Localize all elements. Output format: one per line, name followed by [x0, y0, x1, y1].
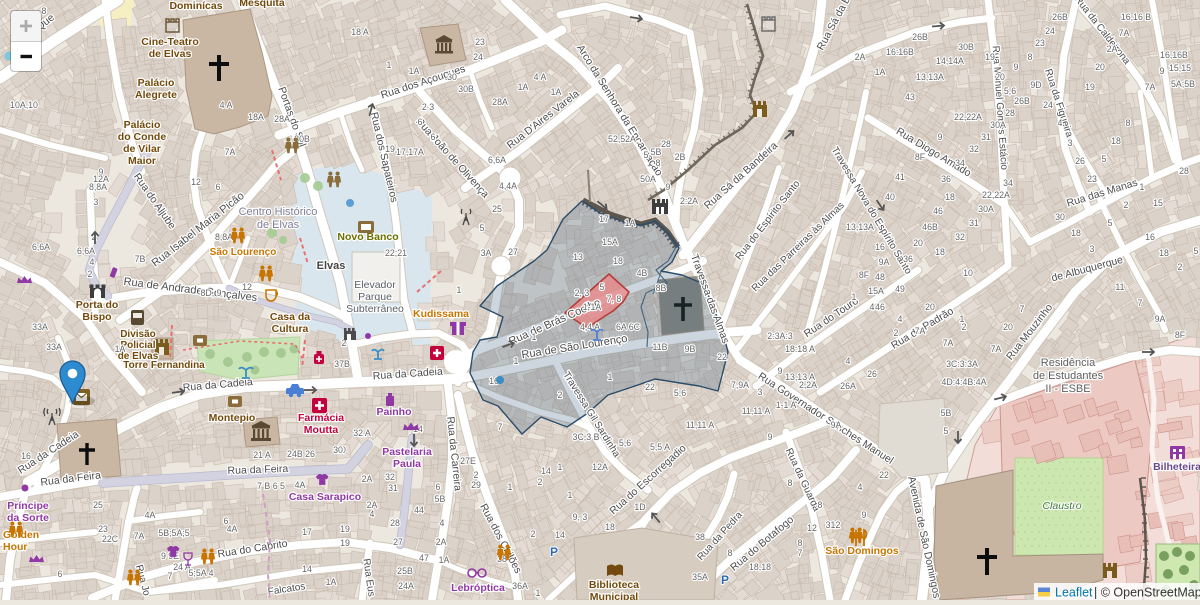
svg-text:46: 46 [875, 302, 885, 312]
svg-text:6: 6 [58, 569, 63, 579]
svg-text:1A: 1A [875, 67, 886, 77]
svg-text:47: 47 [419, 553, 429, 563]
svg-text:Rua da Feira: Rua da Feira [227, 463, 288, 477]
svg-text:9D: 9D [1030, 80, 1041, 90]
svg-text:Municipal: Municipal [590, 591, 639, 600]
svg-text:de Estudantes: de Estudantes [1033, 370, 1104, 382]
svg-text:Casa da: Casa da [270, 311, 310, 323]
svg-text:9: 9 [666, 182, 671, 192]
svg-text:7B: 7B [135, 254, 146, 264]
svg-text:33A: 33A [32, 322, 48, 332]
svg-text:4A: 4A [145, 510, 156, 520]
svg-text:18: 18 [605, 522, 615, 532]
svg-text:16:16B: 16:16B [886, 47, 914, 57]
svg-text:1A: 1A [439, 555, 450, 565]
svg-text:Residência: Residência [1041, 357, 1096, 369]
svg-text:3A: 3A [481, 248, 492, 258]
svg-text:de Vilar: de Vilar [123, 143, 161, 155]
svg-text:32 A: 32 A [353, 428, 371, 438]
svg-text:5: 5 [944, 426, 949, 436]
svg-text:8: 8 [798, 538, 803, 548]
svg-text:21 A: 21 A [253, 450, 271, 460]
svg-text:7A: 7A [225, 147, 236, 157]
svg-text:Painho: Painho [376, 406, 411, 418]
svg-text:Montepio: Montepio [209, 412, 256, 424]
svg-text:2: 2 [894, 328, 899, 338]
svg-text:24: 24 [1045, 26, 1055, 36]
svg-text:9: 9 [1160, 66, 1165, 76]
svg-text:40: 40 [885, 192, 895, 202]
svg-text:8: 8 [1126, 118, 1131, 128]
svg-text:36A: 36A [512, 581, 528, 591]
svg-text:13,13A: 13,13A [846, 222, 874, 232]
svg-text:18,18: 18,18 [749, 562, 771, 572]
svg-text:Palácio: Palácio [138, 77, 175, 89]
svg-text:15A: 15A [602, 237, 618, 247]
svg-text:5: 5 [600, 282, 605, 292]
svg-text:5: 5 [480, 223, 485, 233]
svg-text:17: 17 [302, 527, 312, 537]
svg-text:1: 1 [532, 332, 537, 342]
svg-text:30B: 30B [458, 84, 474, 94]
svg-text:17: 17 [599, 214, 609, 224]
svg-text:Maior: Maior [128, 155, 156, 167]
svg-text:25: 25 [492, 204, 502, 214]
svg-text:20: 20 [1095, 62, 1105, 72]
svg-text:2: 2 [88, 269, 93, 279]
svg-text:3: 3 [1068, 138, 1073, 148]
svg-text:18: 18 [935, 247, 945, 257]
svg-text:São Domingos: São Domingos [825, 545, 899, 557]
svg-text:5B: 5B [651, 147, 662, 157]
svg-text:Príncipe: Príncipe [7, 500, 49, 512]
svg-text:16: 16 [875, 242, 885, 252]
svg-text:38: 38 [695, 532, 705, 542]
svg-text:6: 6 [436, 482, 441, 492]
svg-text:30: 30 [333, 445, 343, 455]
svg-text:5B: 5B [435, 494, 446, 504]
svg-text:3: 3 [1090, 244, 1095, 254]
svg-text:9: 9 [1014, 62, 1019, 72]
svg-text:1A: 1A [551, 87, 562, 97]
svg-text:1A: 1A [326, 577, 337, 587]
svg-text:Dominícas: Dominícas [169, 0, 222, 12]
svg-text:16,16 B: 16,16 B [1121, 12, 1151, 22]
svg-text:7A: 7A [991, 344, 1002, 354]
svg-text:34: 34 [1003, 178, 1013, 188]
svg-text:de Elvas: de Elvas [257, 219, 300, 231]
svg-text:do Conde: do Conde [118, 131, 167, 143]
svg-text:Palácio: Palácio [124, 119, 161, 131]
svg-text:São Lourenço: São Lourenço [210, 247, 277, 258]
svg-text:Kudissama: Kudissama [413, 308, 469, 320]
svg-text:8: 8 [728, 548, 733, 558]
svg-text:2A: 2A [855, 52, 866, 62]
svg-text:1: 1 [558, 462, 563, 472]
svg-text:26B: 26B [1014, 96, 1030, 106]
svg-text:1: 1 [608, 372, 613, 382]
svg-text:7,9A: 7,9A [731, 380, 749, 390]
svg-text:11B: 11B [653, 342, 668, 352]
svg-text:3: 3 [758, 387, 763, 397]
svg-text:6A 6C: 6A 6C [616, 322, 641, 332]
svg-text:Moutta: Moutta [304, 424, 339, 436]
svg-text:P: P [721, 573, 729, 587]
svg-text:4,4A: 4,4A [499, 181, 517, 191]
svg-text:22: 22 [879, 470, 889, 480]
svg-text:9 9E: 9 9E [161, 551, 179, 561]
svg-text:22: 22 [717, 352, 727, 362]
svg-text:9A: 9A [831, 420, 842, 430]
svg-text:9, 3: 9, 3 [573, 512, 588, 522]
svg-text:14,14A: 14,14A [936, 56, 964, 66]
svg-text:1: 1 [960, 314, 965, 324]
svg-text:14: 14 [302, 564, 312, 574]
svg-text:50A: 50A [640, 174, 656, 184]
svg-text:26A: 26A [840, 381, 856, 391]
svg-text:6: 6 [224, 516, 229, 526]
svg-text:12: 12 [242, 282, 252, 292]
svg-text:12A: 12A [93, 174, 109, 184]
svg-text:48: 48 [875, 272, 885, 282]
svg-text:49: 49 [895, 284, 905, 294]
svg-text:1: 1 [387, 60, 392, 70]
svg-text:10: 10 [963, 268, 973, 278]
svg-text:8D, 9: 8D, 9 [200, 288, 221, 298]
svg-text:46B: 46B [922, 222, 938, 232]
svg-text:9: 9 [768, 432, 773, 442]
svg-text:1: 1 [457, 285, 462, 295]
svg-text:31: 31 [981, 132, 991, 142]
svg-text:8: 8 [1028, 52, 1033, 62]
svg-text:Centro Histórico: Centro Histórico [239, 206, 318, 218]
svg-text:Elevador: Elevador [354, 279, 396, 291]
svg-text:30A: 30A [990, 120, 1006, 130]
svg-text:23: 23 [1035, 38, 1045, 48]
svg-text:1A: 1A [625, 218, 636, 228]
svg-text:1: 1 [852, 292, 857, 302]
svg-text:Casa Sarapico: Casa Sarapico [289, 491, 361, 503]
svg-text:5,6: 5,6 [1004, 86, 1016, 96]
svg-text:9: 9 [778, 366, 783, 376]
svg-text:24: 24 [473, 52, 483, 62]
svg-text:28: 28 [1005, 108, 1015, 118]
svg-text:Cultura: Cultura [272, 323, 309, 335]
svg-text:13: 13 [573, 252, 583, 262]
svg-text:6: 6 [216, 182, 221, 192]
svg-text:2 3: 2 3 [422, 102, 434, 112]
svg-text:36: 36 [941, 174, 951, 184]
svg-text:2: 2 [531, 529, 536, 539]
svg-text:4: 4 [370, 509, 375, 519]
svg-text:5A;5B: 5A;5B [1171, 79, 1195, 89]
svg-text:312: 312 [826, 520, 841, 530]
svg-text:9A: 9A [1155, 314, 1166, 324]
svg-text:52,52A: 52,52A [608, 134, 636, 144]
svg-text:2: 2 [1124, 200, 1129, 210]
svg-text:2: 2 [558, 390, 563, 400]
svg-text:4 A: 4 A [220, 100, 233, 110]
svg-text:3: 3 [94, 197, 99, 207]
svg-text:20: 20 [995, 72, 1005, 82]
svg-text:13,13A: 13,13A [916, 72, 944, 82]
svg-text:9: 9 [862, 510, 867, 520]
svg-text:2:2A: 2:2A [680, 196, 698, 206]
svg-text:18:18 A: 18:18 A [785, 344, 815, 354]
svg-text:2B: 2B [675, 152, 686, 162]
svg-text:26B: 26B [912, 32, 928, 42]
svg-text:2A: 2A [436, 537, 447, 547]
svg-text:26: 26 [867, 369, 877, 379]
svg-text:8F: 8F [1175, 330, 1186, 340]
svg-text:4: 4 [870, 302, 875, 312]
svg-text:8,8A: 8,8A [215, 232, 233, 242]
svg-text:5;5A 4: 5;5A 4 [189, 568, 214, 578]
svg-text:19: 19 [340, 538, 350, 548]
svg-text:4: 4 [898, 314, 903, 324]
svg-text:14: 14 [541, 466, 551, 476]
svg-text:8B: 8B [656, 283, 667, 293]
svg-text:2,2A: 2,2A [799, 380, 817, 390]
svg-text:Pastelaria: Pastelaria [382, 446, 432, 458]
svg-text:8: 8 [818, 500, 823, 510]
svg-text:20: 20 [913, 238, 923, 248]
svg-text:1-1A: 1-1A [583, 302, 602, 312]
svg-text:22;21: 22;21 [385, 248, 407, 258]
svg-text:P: P [550, 545, 558, 559]
svg-text:23: 23 [475, 37, 485, 47]
svg-text:Leaflet: Leaflet [1055, 586, 1093, 600]
svg-text:7A: 7A [943, 338, 954, 348]
svg-text:16,16B: 16,16B [1160, 50, 1188, 60]
svg-text:33A: 33A [46, 342, 62, 352]
svg-text:5B: 5B [941, 408, 952, 418]
svg-text:35A: 35A [692, 572, 708, 582]
svg-text:5B;5A;5: 5B;5A;5 [158, 528, 189, 538]
svg-text:Lebróptica: Lebróptica [451, 582, 505, 594]
svg-text:17,17A: 17,17A [396, 147, 424, 157]
svg-text:44: 44 [414, 505, 424, 515]
svg-text:Bispo: Bispo [82, 311, 111, 323]
svg-text:31: 31 [388, 483, 398, 493]
svg-text:30A: 30A [978, 204, 994, 214]
svg-text:23: 23 [98, 524, 108, 534]
svg-text:6,6A: 6,6A [488, 155, 506, 165]
svg-text:15,15: 15,15 [1169, 63, 1191, 73]
svg-text:Porta do: Porta do [76, 299, 119, 311]
svg-text:16: 16 [1145, 232, 1155, 242]
svg-text:18: 18 [613, 256, 623, 266]
svg-text:18: 18 [945, 192, 955, 202]
svg-text:12: 12 [807, 523, 817, 533]
svg-text:Alegrete: Alegrete [135, 89, 177, 101]
svg-text:7: 7 [1138, 298, 1143, 308]
svg-text:23: 23 [1087, 174, 1097, 184]
svg-text:7 B 6 5: 7 B 6 5 [257, 481, 285, 491]
svg-text:20: 20 [1003, 322, 1013, 332]
svg-text:18: 18 [1159, 248, 1169, 258]
svg-text:Biblioteca: Biblioteca [589, 579, 639, 591]
svg-text:1A: 1A [518, 82, 529, 92]
svg-text:20: 20 [925, 302, 935, 312]
svg-text:5: 5 [1194, 246, 1199, 256]
svg-text:Policial: Policial [120, 340, 155, 351]
svg-text:7A: 7A [1145, 82, 1156, 92]
svg-text:de Elvas: de Elvas [149, 48, 192, 60]
svg-text:4: 4 [440, 518, 445, 528]
svg-text:22,22A: 22,22A [954, 112, 982, 122]
svg-text:16: 16 [21, 451, 31, 461]
svg-text:4 A: 4 A [534, 72, 547, 82]
svg-text:1A: 1A [409, 66, 420, 76]
svg-text:7: 7 [498, 422, 503, 432]
svg-text:37B: 37B [334, 359, 350, 369]
svg-text:18: 18 [1111, 136, 1121, 146]
svg-text:4: 4 [858, 482, 863, 492]
svg-text:1A: 1A [115, 344, 126, 354]
svg-text:26: 26 [1075, 156, 1085, 166]
svg-text:19: 19 [1085, 82, 1095, 92]
svg-text:22C: 22C [102, 534, 119, 544]
svg-text:24A: 24A [398, 581, 414, 591]
svg-text:4D:4:4B:4A: 4D:4:4B:4A [942, 377, 987, 387]
svg-text:1D: 1D [634, 502, 645, 512]
svg-text:30B: 30B [958, 42, 974, 52]
svg-text:7: 7 [168, 571, 173, 581]
svg-text:12: 12 [191, 177, 201, 187]
svg-text:19: 19 [340, 524, 350, 534]
svg-text:36: 36 [903, 254, 913, 264]
svg-text:Hour: Hour [3, 541, 28, 553]
svg-text:8: 8 [656, 158, 661, 168]
svg-text:18 A: 18 A [351, 27, 369, 37]
svg-text:4,4 A: 4,4 A [580, 322, 600, 332]
svg-text:Subterrâneo: Subterrâneo [346, 303, 404, 315]
svg-text:6,6A: 6,6A [32, 242, 50, 252]
svg-text:7: 7 [1020, 304, 1025, 314]
svg-text:9A: 9A [879, 257, 890, 267]
svg-text:5,6: 5,6 [674, 388, 686, 398]
svg-text:4: 4 [846, 356, 851, 366]
svg-text:2, 3: 2, 3 [575, 288, 590, 298]
svg-text:3C:3:3A: 3C:3:3A [946, 359, 978, 369]
svg-text:6: 6 [418, 117, 423, 127]
svg-text:11,11 A: 11,11 A [686, 420, 715, 430]
svg-text:7: 7 [798, 548, 803, 558]
svg-text:41: 41 [895, 172, 905, 182]
svg-text:9B: 9B [685, 344, 696, 354]
svg-text:8F: 8F [859, 270, 870, 280]
svg-text:32: 32 [385, 472, 395, 482]
svg-text:32: 32 [969, 144, 979, 154]
svg-text:4: 4 [90, 257, 95, 267]
svg-text:7A: 7A [1119, 28, 1130, 38]
svg-text:25B: 25B [397, 566, 413, 576]
svg-text:5: 5 [1102, 154, 1107, 164]
svg-text:22: 22 [645, 382, 655, 392]
svg-text:5: 5 [644, 150, 649, 160]
svg-text:27: 27 [393, 537, 403, 547]
svg-text:24B 26: 24B 26 [287, 449, 315, 459]
svg-text:5: 5 [1108, 218, 1113, 228]
svg-text:2: 2 [1178, 262, 1183, 272]
svg-text:11: 11 [1115, 282, 1124, 292]
svg-text:1-1 A: 1-1 A [776, 400, 797, 410]
svg-text:28: 28 [661, 139, 671, 149]
svg-text:Torre Fernandina: Torre Fernandina [123, 360, 205, 371]
svg-text:4: 4 [1058, 118, 1063, 128]
svg-text:29: 29 [471, 480, 481, 490]
svg-text:34: 34 [955, 158, 965, 168]
svg-text:15A: 15A [868, 286, 884, 296]
svg-text:7A: 7A [134, 531, 145, 541]
svg-text:Bilheteira: Bilheteira [1153, 461, 1200, 473]
svg-text:28A: 28A [492, 97, 508, 107]
svg-text:27E: 27E [460, 456, 476, 466]
svg-text:31: 31 [969, 218, 979, 228]
svg-text:5,5 A: 5,5 A [650, 442, 670, 452]
svg-text:19: 19 [985, 52, 995, 62]
svg-text:1: 1 [536, 588, 541, 598]
svg-text:Paula: Paula [393, 458, 421, 470]
svg-text:28A: 28A [274, 114, 290, 124]
svg-text:12A: 12A [592, 462, 608, 472]
svg-text:43: 43 [905, 92, 915, 102]
svg-text:| © OpenStreetMap: | © OpenStreetMap [1094, 586, 1200, 600]
svg-text:8F: 8F [915, 152, 926, 162]
svg-text:1: 1 [514, 356, 519, 366]
svg-text:6,6A: 6,6A [77, 246, 95, 256]
svg-text:Mesquita: Mesquita [239, 0, 285, 9]
svg-text:Cine-Teatro: Cine-Teatro [141, 36, 199, 48]
svg-text:Claustro: Claustro [1042, 500, 1081, 512]
svg-text:4B: 4B [637, 268, 648, 278]
svg-text:Parque: Parque [358, 291, 392, 303]
svg-text:7A: 7A [915, 326, 926, 336]
svg-text:1: 1 [508, 482, 513, 492]
svg-text:28: 28 [1179, 166, 1189, 176]
svg-text:8: 8 [788, 478, 793, 488]
svg-text:II - ESBE: II - ESBE [1045, 383, 1090, 395]
svg-text:46: 46 [933, 206, 943, 216]
svg-text:2: 2 [538, 477, 543, 487]
svg-text:6: 6 [431, 132, 436, 142]
svg-text:4A: 4A [295, 480, 306, 490]
svg-text:5,6: 5,6 [619, 438, 631, 448]
svg-text:30: 30 [447, 72, 457, 82]
svg-text:18A: 18A [248, 112, 264, 122]
svg-text:28: 28 [390, 518, 400, 528]
svg-text:15: 15 [1153, 198, 1163, 208]
svg-text:1: 1 [1140, 182, 1145, 192]
svg-text:8: 8 [42, 6, 47, 16]
svg-text:24: 24 [1043, 100, 1053, 110]
svg-text:14: 14 [555, 530, 565, 540]
svg-text:10A,10: 10A,10 [10, 100, 38, 110]
svg-text:Divisão: Divisão [120, 329, 156, 340]
svg-text:22,22A: 22,22A [982, 190, 1010, 200]
svg-text:9: 9 [938, 132, 943, 142]
svg-text:3C,3 B: 3C,3 B [573, 432, 600, 442]
svg-text:32: 32 [955, 232, 965, 242]
svg-text:26B: 26B [1052, 12, 1068, 22]
svg-text:11,11 A: 11,11 A [742, 406, 771, 416]
svg-text:18: 18 [1071, 228, 1081, 238]
svg-text:2: 2 [474, 470, 479, 480]
svg-text:Elvas: Elvas [317, 260, 346, 272]
svg-text:2A: 2A [1107, 44, 1118, 54]
svg-text:Farmácia: Farmácia [298, 412, 344, 424]
